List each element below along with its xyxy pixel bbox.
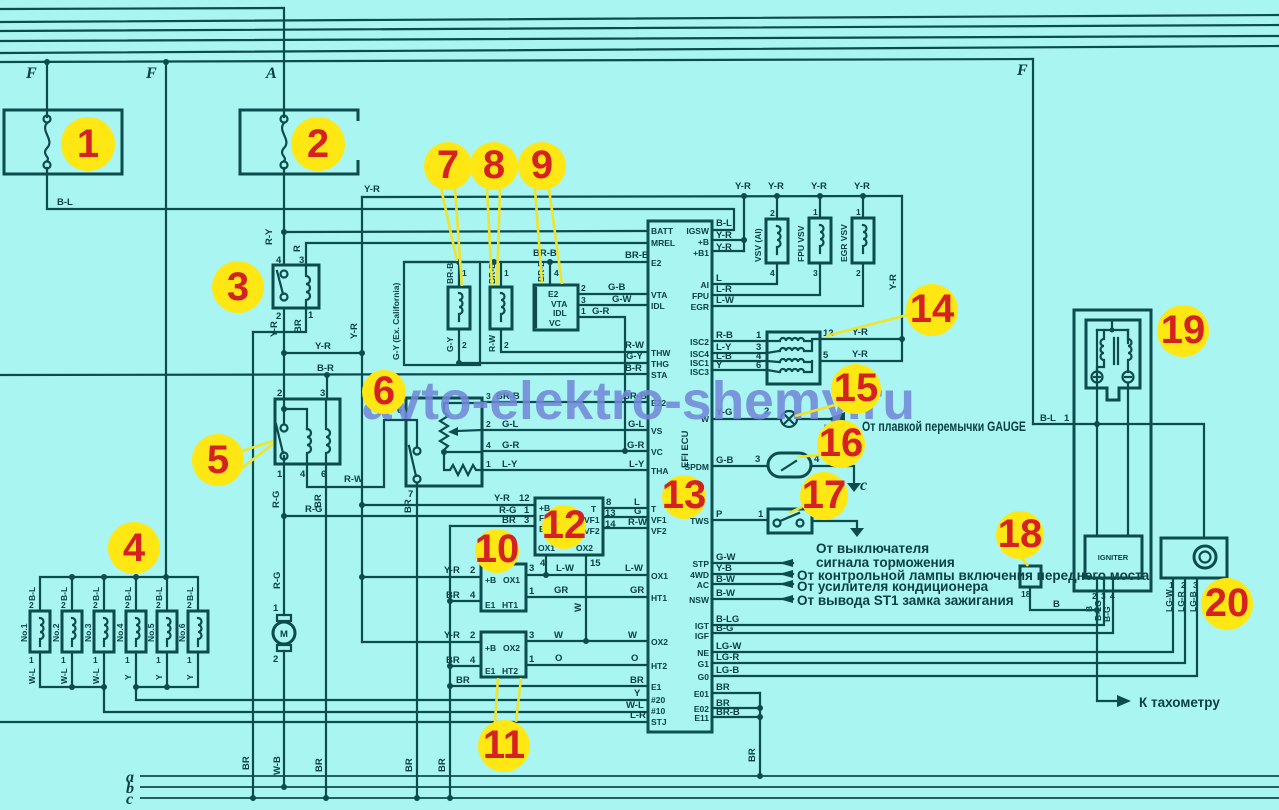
svg-text:1: 1 (529, 654, 535, 665)
svg-text:1: 1 (462, 268, 467, 278)
svg-text:OX1: OX1 (651, 571, 668, 581)
svg-text:7: 7 (437, 143, 459, 187)
svg-text:1: 1 (125, 655, 130, 665)
svg-text:L-W: L-W (716, 295, 734, 306)
svg-text:1: 1 (813, 207, 818, 217)
svg-text:3: 3 (1193, 580, 1198, 590)
svg-text:A: A (265, 65, 277, 82)
svg-text:1: 1 (1064, 413, 1070, 424)
svg-text:E1: E1 (651, 682, 662, 692)
svg-text:F: F (25, 65, 37, 82)
svg-text:+B: +B (485, 575, 496, 585)
svg-text:THG: THG (651, 359, 669, 369)
svg-text:c: c (126, 791, 133, 808)
svg-text:VC: VC (549, 318, 561, 328)
svg-text:W-L: W-L (27, 668, 37, 684)
svg-text:3: 3 (813, 268, 818, 278)
svg-text:Y-R: Y-R (811, 181, 827, 192)
svg-text:1: 1 (581, 306, 586, 316)
svg-text:15: 15 (834, 366, 879, 410)
svg-text:B-L: B-L (91, 587, 101, 601)
svg-text:THW: THW (651, 348, 671, 358)
svg-text:BR: BR (404, 758, 415, 772)
svg-text:От вывода ST1 замка зажигания: От вывода ST1 замка зажигания (797, 593, 1014, 608)
svg-text:#20: #20 (651, 695, 665, 705)
svg-text:9: 9 (531, 143, 553, 187)
svg-text:F: F (145, 65, 157, 82)
svg-text:2: 2 (581, 283, 586, 293)
svg-text:VTA: VTA (651, 290, 667, 300)
svg-text:Y: Y (716, 360, 723, 371)
svg-text:AC: AC (697, 580, 709, 590)
svg-text:W-L: W-L (91, 668, 101, 684)
svg-text:E11: E11 (694, 713, 709, 723)
svg-text:EGR VSV: EGR VSV (839, 224, 849, 262)
svg-text:BR: BR (716, 682, 730, 693)
svg-text:5: 5 (207, 438, 229, 482)
svg-text:Y-R: Y-R (716, 242, 732, 253)
svg-text:1: 1 (77, 122, 99, 166)
svg-text:B-L: B-L (154, 587, 164, 601)
svg-text:OX2: OX2 (651, 637, 668, 647)
svg-text:VSV (AI): VSV (AI) (753, 228, 763, 262)
svg-text:STP: STP (692, 559, 709, 569)
svg-text:No.5: No.5 (146, 623, 156, 642)
svg-text:R-Y: R-Y (264, 228, 275, 245)
svg-text:HT1: HT1 (502, 600, 518, 610)
svg-text:BR: BR (313, 494, 324, 508)
svg-text:4: 4 (1110, 591, 1115, 601)
svg-text:L-W: L-W (625, 563, 643, 574)
svg-text:3: 3 (320, 388, 325, 399)
svg-text:No.1: No.1 (19, 623, 29, 642)
svg-text:B-L: B-L (1040, 413, 1056, 424)
svg-text:5: 5 (823, 350, 829, 361)
svg-text:BR: BR (630, 675, 644, 686)
svg-text:G-B: G-B (608, 282, 626, 293)
svg-text:7: 7 (408, 489, 413, 500)
svg-text:R-W: R-W (625, 340, 644, 351)
svg-text:6: 6 (756, 360, 761, 371)
svg-text:1: 1 (504, 268, 509, 278)
svg-text:B-L: B-L (57, 197, 73, 208)
svg-text:B-L: B-L (59, 587, 69, 601)
svg-text:15: 15 (590, 558, 601, 569)
svg-text:LG-R: LG-R (1176, 591, 1186, 612)
svg-text:Y: Y (634, 688, 641, 699)
svg-text:+B: +B (485, 643, 496, 653)
svg-text:R-G: R-G (271, 491, 282, 508)
svg-text:OX1: OX1 (503, 575, 520, 585)
svg-text:G-B: G-B (716, 455, 734, 466)
svg-text:Y-R: Y-R (315, 341, 331, 352)
svg-text:17: 17 (802, 473, 847, 517)
svg-text:B-G: B-G (1102, 606, 1112, 622)
svg-text:B-R: B-R (317, 363, 334, 374)
svg-text:BR: BR (314, 758, 325, 772)
svg-text:1: 1 (277, 469, 283, 480)
svg-text:G1: G1 (698, 659, 710, 669)
svg-text:2: 2 (462, 340, 467, 350)
svg-text:IGSW: IGSW (686, 226, 710, 236)
svg-text:1: 1 (93, 655, 98, 665)
svg-text:14: 14 (910, 287, 955, 331)
svg-text:NE: NE (697, 648, 709, 658)
svg-text:BR-B: BR-B (533, 248, 557, 259)
svg-text:HT2: HT2 (651, 661, 667, 671)
svg-text:Y: Y (123, 674, 133, 680)
svg-text:B-L: B-L (123, 587, 133, 601)
svg-text:4: 4 (554, 268, 559, 278)
svg-text:R-W: R-W (344, 474, 363, 485)
svg-text:T: T (591, 504, 597, 514)
svg-text:3: 3 (227, 265, 249, 309)
svg-text:BATT: BATT (651, 226, 674, 236)
svg-text:FPU: FPU (692, 291, 709, 301)
svg-text:IDL: IDL (651, 301, 665, 311)
svg-text:Y-R: Y-R (768, 181, 784, 192)
svg-text:L-R: L-R (716, 284, 732, 295)
svg-text:G-R: G-R (502, 440, 520, 451)
svg-text:G-W: G-W (716, 552, 736, 563)
svg-text:EGR: EGR (691, 302, 709, 312)
svg-text:IGT: IGT (695, 621, 710, 631)
svg-text:L-Y: L-Y (502, 459, 518, 470)
svg-text:W-L: W-L (59, 668, 69, 684)
svg-text:B: B (1053, 599, 1060, 610)
svg-text:G: G (634, 506, 641, 517)
svg-text:G-Y (Ex. California): G-Y (Ex. California) (391, 283, 401, 360)
svg-text:LG-W: LG-W (1164, 588, 1174, 612)
svg-text:R-W: R-W (487, 334, 497, 352)
svg-text:Y: Y (185, 674, 195, 680)
svg-text:1: 1 (187, 655, 192, 665)
svg-text:Y-R: Y-R (444, 565, 460, 576)
svg-text:IGF: IGF (695, 631, 709, 641)
svg-text:L-Y: L-Y (629, 459, 645, 470)
svg-text:P: P (716, 509, 723, 520)
svg-text:G-R: G-R (592, 306, 610, 317)
svg-text:IGNITER: IGNITER (1098, 553, 1129, 562)
svg-text:BR: BR (241, 756, 252, 770)
svg-text:FPU VSV: FPU VSV (796, 225, 806, 262)
svg-text:1: 1 (486, 459, 491, 469)
svg-text:#10: #10 (651, 706, 665, 716)
svg-text:G-Y: G-Y (445, 337, 455, 352)
svg-text:BR-B: BR-B (716, 707, 740, 718)
svg-text:1: 1 (308, 310, 314, 321)
svg-text:Y-R: Y-R (494, 493, 510, 504)
svg-text:1: 1 (756, 330, 762, 341)
svg-text:4: 4 (486, 440, 491, 450)
svg-text:2: 2 (307, 122, 329, 166)
svg-text:VF1: VF1 (584, 515, 600, 525)
svg-text:Y-B: Y-B (716, 563, 732, 574)
svg-text:1: 1 (529, 586, 535, 597)
svg-text:8: 8 (483, 143, 505, 187)
svg-text:LG-R: LG-R (716, 652, 739, 663)
svg-text:F: F (1016, 62, 1028, 79)
svg-text:1: 1 (273, 603, 279, 614)
svg-text:1: 1 (1169, 580, 1174, 590)
svg-text:G-W: G-W (612, 294, 632, 305)
svg-text:R: R (292, 245, 303, 252)
svg-text:No.6: No.6 (177, 623, 187, 642)
svg-text:2: 2 (273, 654, 278, 665)
svg-text:Y-R: Y-R (888, 274, 899, 290)
svg-text:3: 3 (755, 454, 760, 465)
svg-text:E1: E1 (485, 666, 496, 676)
svg-text:MREL: MREL (651, 238, 675, 248)
svg-text:4: 4 (770, 268, 775, 278)
svg-text:2: 2 (276, 311, 281, 322)
svg-text:Y-R: Y-R (364, 184, 380, 195)
svg-text:3: 3 (529, 563, 534, 574)
svg-text:B-G: B-G (716, 623, 733, 634)
svg-text:SPDM: SPDM (684, 462, 709, 472)
svg-text:2: 2 (856, 268, 861, 278)
svg-text:К тахометру: К тахометру (1139, 695, 1220, 710)
svg-text:B-W: B-W (716, 574, 735, 585)
svg-text:B-W: B-W (716, 588, 735, 599)
svg-text:4WD: 4WD (690, 570, 709, 580)
svg-text:W: W (628, 630, 637, 641)
svg-text:Y-R: Y-R (854, 181, 870, 192)
svg-text:От выключателя: От выключателя (816, 541, 929, 556)
svg-text:14: 14 (605, 519, 616, 530)
svg-text:1: 1 (758, 509, 764, 520)
svg-text:6: 6 (373, 369, 395, 413)
svg-text:B-L: B-L (716, 218, 732, 229)
svg-text:3: 3 (299, 255, 304, 266)
svg-text:20: 20 (1205, 581, 1250, 625)
svg-text:No.3: No.3 (83, 623, 93, 642)
svg-text:W: W (554, 630, 563, 641)
svg-text:LG-B: LG-B (1188, 591, 1198, 612)
svg-text:VC: VC (651, 447, 663, 457)
svg-text:2: 2 (1181, 580, 1186, 590)
svg-text:13: 13 (605, 508, 616, 519)
svg-text:19: 19 (1161, 308, 1206, 352)
svg-text:E2: E2 (548, 289, 559, 299)
svg-text:4: 4 (470, 655, 476, 666)
svg-text:1: 1 (61, 655, 66, 665)
svg-text:Y-R: Y-R (735, 181, 751, 192)
svg-text:AI: AI (701, 280, 710, 290)
svg-text:VF2: VF2 (651, 526, 667, 536)
svg-text:BR-B: BR-B (625, 250, 649, 261)
svg-text:ISC2: ISC2 (690, 337, 709, 347)
svg-text:R-W: R-W (628, 517, 647, 528)
svg-text:c: c (860, 477, 867, 494)
svg-text:1: 1 (156, 655, 161, 665)
svg-text:+B1: +B1 (693, 248, 709, 258)
svg-text:HT1: HT1 (651, 593, 667, 603)
svg-text:O: O (555, 653, 562, 664)
svg-text:E01: E01 (694, 689, 709, 699)
svg-text:3: 3 (1101, 591, 1106, 601)
svg-text:BR: BR (456, 675, 470, 686)
svg-text:12: 12 (519, 493, 530, 504)
svg-text:TWS: TWS (690, 516, 709, 526)
svg-text:3: 3 (524, 515, 529, 526)
svg-text:10: 10 (475, 527, 520, 571)
svg-text:Y-R: Y-R (269, 321, 280, 337)
svg-text:O: O (631, 653, 638, 664)
svg-text:Y-R: Y-R (444, 630, 460, 641)
svg-text:11: 11 (483, 723, 525, 767)
svg-text:18: 18 (998, 512, 1043, 556)
svg-text:E2: E2 (651, 258, 662, 268)
svg-text:4: 4 (123, 526, 146, 570)
svg-text:2: 2 (504, 340, 509, 350)
svg-text:LG-B: LG-B (716, 665, 739, 676)
svg-text:1: 1 (856, 207, 861, 217)
svg-text:2: 2 (770, 208, 775, 218)
svg-text:BR: BR (437, 758, 448, 772)
svg-text:L: L (716, 273, 722, 284)
svg-text:12: 12 (542, 503, 587, 547)
svg-text:OX2: OX2 (503, 643, 520, 653)
svg-text:LG-W: LG-W (716, 641, 741, 652)
svg-text:W-B: W-B (272, 756, 283, 775)
svg-text:4: 4 (540, 558, 546, 569)
svg-text:IDL: IDL (553, 308, 567, 318)
svg-text:От усилителя кондиционера: От усилителя кондиционера (797, 579, 989, 594)
svg-text:W: W (573, 603, 584, 612)
svg-text:Y-R: Y-R (852, 349, 868, 360)
svg-text:B-L: B-L (27, 587, 37, 601)
svg-text:+B: +B (698, 237, 709, 247)
svg-text:No.2: No.2 (51, 623, 61, 642)
svg-text:B-L: B-L (185, 587, 195, 601)
svg-text:BR: BR (747, 748, 758, 762)
svg-text:L-W: L-W (556, 563, 574, 574)
svg-text:Y: Y (154, 674, 164, 680)
svg-text:13: 13 (662, 473, 707, 517)
svg-text:BR: BR (502, 515, 516, 526)
svg-text:T: T (651, 504, 657, 514)
svg-text:1: 1 (29, 655, 34, 665)
svg-text:R-G: R-G (272, 572, 283, 589)
svg-text:VF2: VF2 (584, 526, 600, 536)
svg-text:L-R: L-R (630, 710, 646, 721)
svg-text:STJ: STJ (651, 717, 667, 727)
svg-text:No.4: No.4 (115, 623, 125, 642)
svg-text:E1: E1 (485, 600, 496, 610)
svg-text:GR: GR (554, 585, 568, 596)
svg-text:3: 3 (529, 630, 534, 641)
svg-text:4: 4 (470, 590, 476, 601)
svg-text:M: M (280, 629, 288, 640)
svg-text:16: 16 (819, 421, 864, 465)
svg-text:HT2: HT2 (502, 666, 518, 676)
svg-text:8: 8 (606, 497, 611, 508)
svg-text:3: 3 (581, 295, 586, 305)
svg-text:BR: BR (293, 319, 304, 333)
svg-text:G0: G0 (698, 672, 710, 682)
svg-text:Y-R: Y-R (349, 323, 360, 339)
svg-text:2: 2 (277, 388, 282, 399)
svg-text:GR: GR (630, 585, 644, 596)
svg-text:Y-R: Y-R (716, 230, 732, 241)
svg-text:BR-B: BR-B (445, 263, 455, 284)
svg-text:R-B: R-B (716, 330, 733, 341)
svg-text:2: 2 (470, 630, 475, 641)
svg-text:G-R: G-R (627, 440, 645, 451)
svg-text:NSW: NSW (689, 595, 710, 605)
svg-text:4: 4 (300, 469, 306, 480)
svg-text:4: 4 (276, 255, 282, 266)
